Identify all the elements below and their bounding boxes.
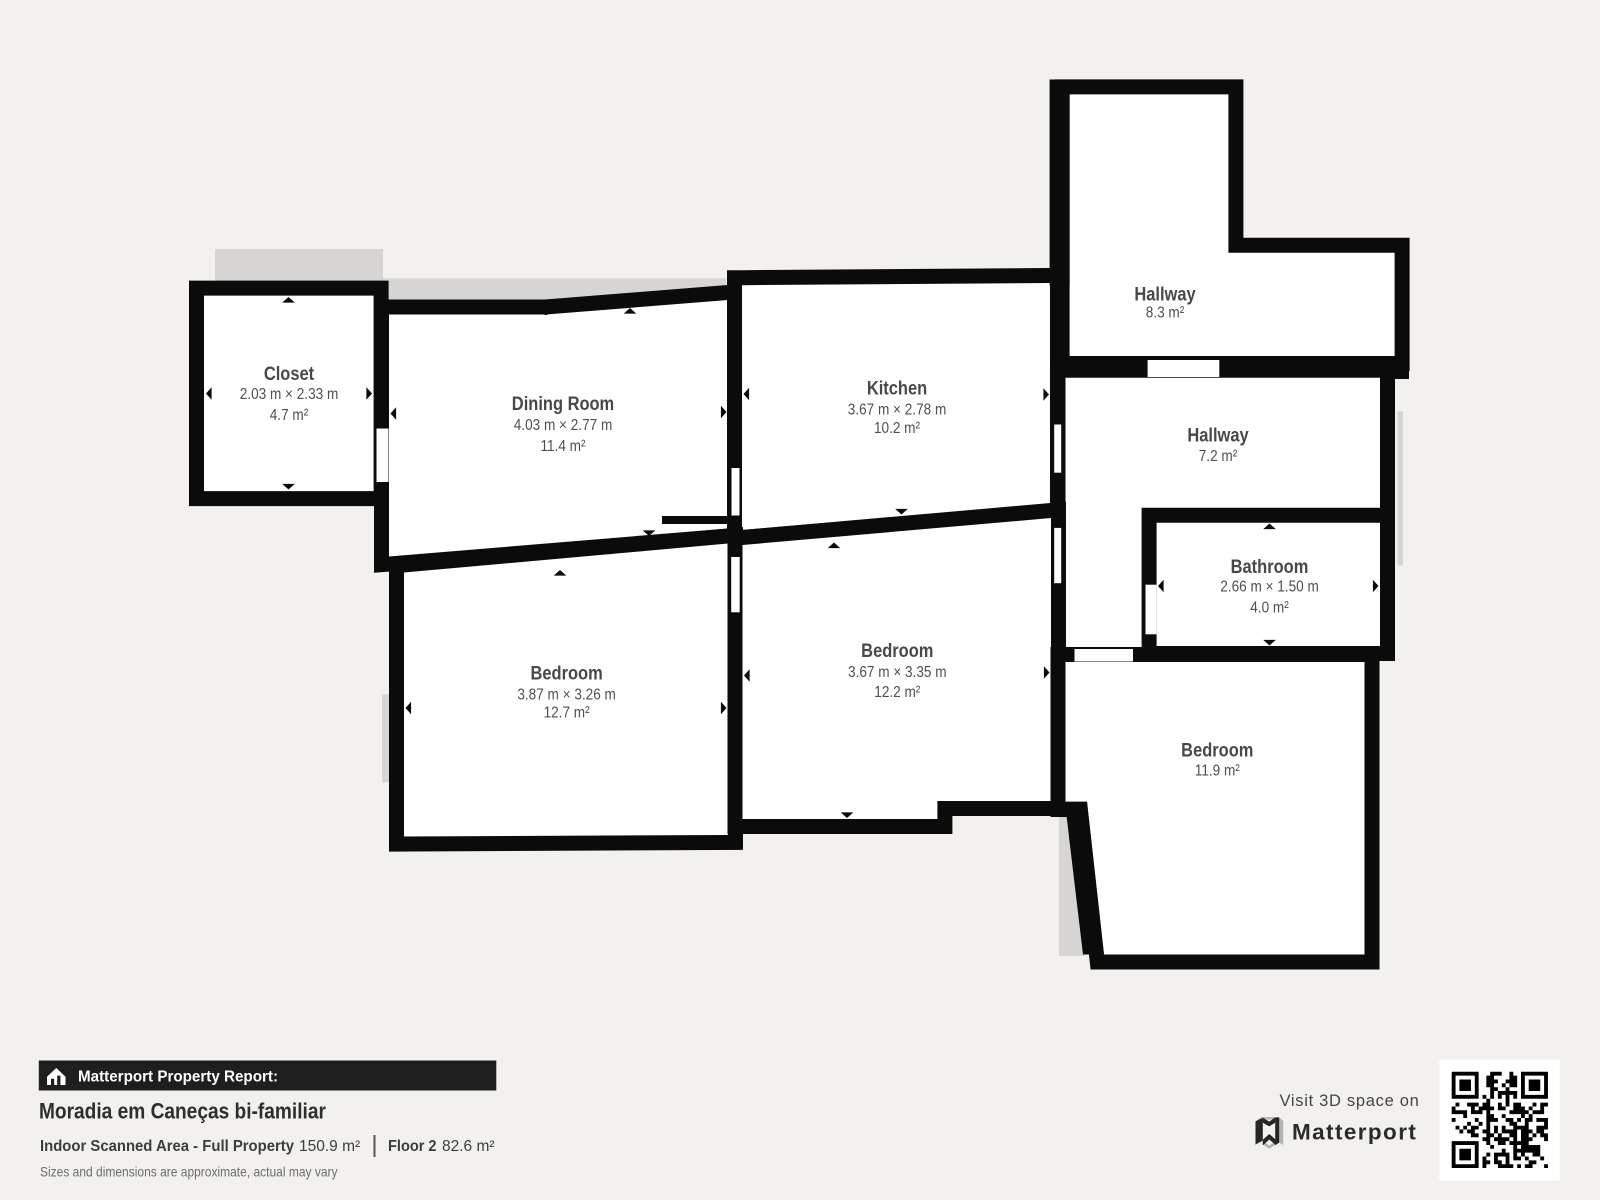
svg-text:Hallway: Hallway (1134, 283, 1195, 305)
svg-text:Hallway: Hallway (1187, 424, 1248, 446)
svg-text:7.2 m²: 7.2 m² (1199, 448, 1238, 465)
svg-text:11.9 m²: 11.9 m² (1195, 763, 1240, 780)
svg-text:8.3 m²: 8.3 m² (1146, 305, 1185, 322)
svg-text:Dining Room: Dining Room (512, 393, 614, 415)
svg-text:Closet: Closet (264, 363, 314, 385)
svg-text:3.87 m × 3.26 m: 3.87 m × 3.26 m (517, 686, 616, 703)
svg-text:150.9 m²: 150.9 m² (299, 1138, 360, 1155)
svg-text:Indoor Scanned Area - Full Pro: Indoor Scanned Area - Full Property (40, 1138, 295, 1155)
svg-text:2.03 m × 2.33 m: 2.03 m × 2.33 m (240, 386, 339, 403)
svg-text:2.66 m × 1.50 m: 2.66 m × 1.50 m (1220, 579, 1319, 596)
svg-text:Sizes and dimensions are appro: Sizes and dimensions are approximate, ac… (40, 1164, 338, 1180)
svg-text:Matterport: Matterport (1292, 1120, 1417, 1145)
svg-text:4.7 m²: 4.7 m² (270, 407, 309, 424)
svg-text:Bedroom: Bedroom (1181, 739, 1253, 761)
svg-text:Bathroom: Bathroom (1231, 555, 1309, 577)
svg-text:10.2 m²: 10.2 m² (874, 420, 920, 437)
svg-text:12.2 m²: 12.2 m² (874, 684, 920, 701)
svg-text:Matterport Property Report:: Matterport Property Report: (78, 1068, 278, 1085)
svg-text:82.6 m²: 82.6 m² (442, 1138, 495, 1155)
svg-text:3.67 m × 3.35 m: 3.67 m × 3.35 m (848, 664, 947, 681)
svg-text:Kitchen: Kitchen (867, 377, 927, 399)
svg-text:Moradia em Caneças bi-familiar: Moradia em Caneças bi-familiar (39, 1099, 326, 1124)
svg-text:Floor 2: Floor 2 (388, 1138, 437, 1156)
svg-text:12.7 m²: 12.7 m² (544, 705, 590, 722)
svg-text:Bedroom: Bedroom (861, 640, 933, 662)
svg-text:Visit 3D space on: Visit 3D space on (1279, 1092, 1419, 1110)
svg-text:4.0 m²: 4.0 m² (1250, 600, 1289, 617)
svg-text:3.67 m × 2.78 m: 3.67 m × 2.78 m (848, 402, 947, 419)
svg-text:Bedroom: Bedroom (530, 662, 602, 684)
svg-text:11.4 m²: 11.4 m² (540, 438, 585, 455)
svg-text:4.03 m × 2.77 m: 4.03 m × 2.77 m (514, 417, 613, 434)
